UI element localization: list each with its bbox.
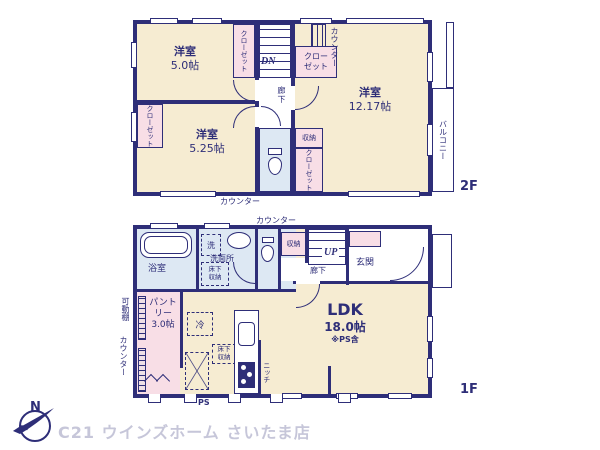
burner [241, 379, 246, 384]
window [346, 18, 424, 24]
stairs-down-label: DN [261, 56, 275, 69]
balcony-rail [446, 22, 454, 88]
niche-label: ニッチ [262, 362, 271, 383]
wall [255, 229, 258, 289]
bedroom-525-label: 洋室 5.25帖 [172, 128, 242, 156]
balcony-label-wrap: バルコニー [433, 89, 453, 191]
room-name: パントリー [148, 298, 178, 320]
wall [328, 366, 331, 394]
counter-left-label: カウンター [118, 336, 128, 376]
window [388, 393, 412, 399]
burner [247, 372, 252, 377]
window [427, 358, 433, 378]
compass-n-label: N [30, 400, 41, 415]
bedroom-1217-label: 洋室 12.17帖 [330, 86, 410, 114]
burner [241, 365, 246, 370]
stairs-up-label: UP [322, 247, 339, 260]
corridor-label-1f: 廊下 [310, 266, 326, 276]
room-size: 5.25帖 [172, 142, 242, 156]
toilet-icon [268, 148, 282, 155]
closet-bottom-box-2f: クローゼット [295, 148, 323, 192]
closet-bottom-label: クローゼット [304, 149, 314, 191]
room-name: 洋室 [150, 45, 220, 59]
bedroom-5-label: 洋室 5.0帖 [150, 45, 220, 73]
window [427, 52, 433, 82]
closet-left-label: クローゼット [145, 105, 155, 147]
vent-notch [148, 394, 161, 403]
corridor-label-2f: 廊下 [276, 86, 286, 104]
washer-label: 洗 [207, 240, 215, 251]
entrance-label: 玄関 [356, 258, 374, 269]
counter-top-label-1f: カウンター [256, 216, 296, 226]
floor2-tag: 2F [460, 179, 478, 195]
room-size: 5.0帖 [150, 59, 220, 73]
washer-icon: 洗 [201, 234, 221, 256]
wall [258, 340, 261, 394]
pantry-label: パントリー 3.0帖 [147, 298, 179, 331]
bathtub-icon [140, 232, 192, 258]
cupboard-space [185, 352, 209, 390]
window [348, 191, 420, 197]
vent-notch [270, 394, 283, 403]
underfloor-storage-wash: 床下収納 [201, 262, 229, 286]
window [131, 42, 137, 68]
window [192, 18, 222, 24]
vent-notch [338, 394, 351, 403]
floor1-tag: 1F [460, 382, 478, 398]
storage-box-1f: 収納 [281, 232, 306, 256]
storage-box-2f: 収納 [295, 128, 323, 148]
room-name: 洋室 [330, 86, 410, 100]
window [150, 18, 178, 24]
brand-caption: C21 ウインズホーム さいたま店 [58, 419, 311, 443]
toilet-icon [262, 237, 274, 243]
vent-notch [184, 394, 197, 403]
counter-top-label-2f: カウンター [329, 27, 339, 67]
movable-shelf-icon [138, 296, 146, 340]
counter-bottom-label-2f: カウンター [220, 197, 260, 207]
bathtub-inner [144, 236, 188, 254]
underfloor-storage-label: 床下収納 [208, 266, 223, 282]
balcony: バルコニー [432, 88, 454, 192]
stairs-down-icon [259, 24, 291, 78]
movable-shelf-label: 可動棚 [120, 297, 130, 321]
sink-icon [227, 232, 251, 249]
room-note: ※PS含 [315, 335, 375, 345]
floorplan-canvas: DN 廊下 クローゼット クローゼット クローゼット 収納 クローゼット カウン… [0, 0, 600, 450]
fridge-label: 冷 [195, 318, 204, 331]
window [204, 223, 230, 229]
ldk-label: LDK 18.0帖 ※PS含 [315, 300, 375, 345]
counter-icon-1f [138, 348, 146, 392]
window [131, 112, 137, 142]
room-size: 18.0帖 [315, 320, 375, 335]
window [300, 18, 332, 24]
window [427, 124, 433, 156]
wall [180, 292, 183, 368]
porch [432, 234, 452, 288]
bath-label: 浴室 [148, 264, 166, 275]
fridge-space: 冷 [187, 312, 213, 336]
kitchen-sink-icon [238, 322, 255, 346]
underfloor-storage-label: 床下収納 [217, 346, 232, 362]
closet-left-box-2f: クローゼット [137, 104, 163, 148]
vent-notch [228, 394, 241, 403]
closet-strip-2f: クローゼット [233, 24, 255, 78]
window [282, 393, 302, 399]
room-size: 12.17帖 [330, 100, 410, 114]
shoe-cabinet [349, 231, 381, 247]
underfloor-storage-kitchen: 床下収納 [212, 344, 236, 364]
stove-icon [238, 362, 255, 388]
room-size: 3.0帖 [147, 320, 179, 331]
window [160, 191, 216, 197]
wall [196, 229, 199, 289]
storage-label-1f: 収納 [287, 239, 301, 249]
counter-icon-2f [311, 24, 326, 47]
balcony-label: バルコニー [438, 120, 449, 160]
storage-label-2f: 収納 [302, 133, 316, 143]
corridor-1f [281, 258, 308, 281]
compass-icon: N [10, 398, 58, 446]
room-name: LDK [315, 300, 375, 320]
closet-mid-label: クローゼット [302, 52, 330, 71]
closet-strip-label: クローゼット [239, 30, 249, 72]
window [150, 223, 178, 229]
window [427, 316, 433, 342]
room-name: 洋室 [172, 128, 242, 142]
ps-label: PS [198, 398, 210, 408]
